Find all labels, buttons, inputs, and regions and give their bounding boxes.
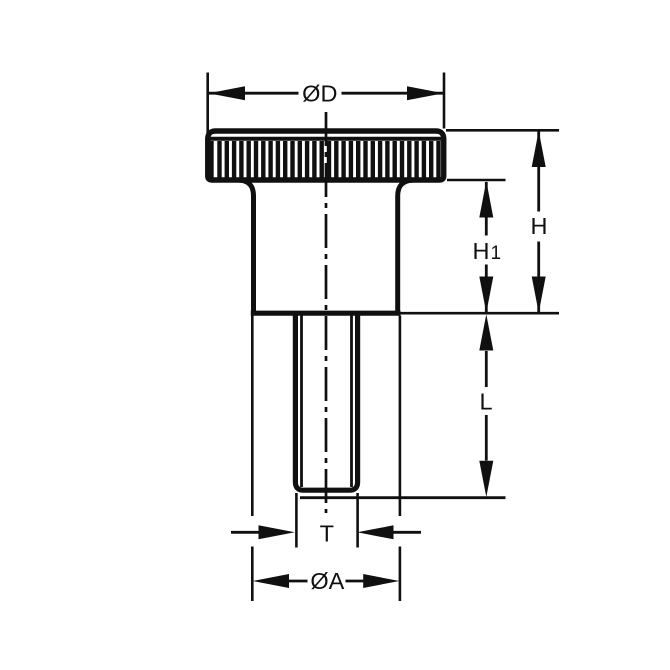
svg-text:L: L bbox=[479, 389, 492, 415]
svg-text:H: H bbox=[473, 238, 490, 264]
svg-text:ØD: ØD bbox=[302, 80, 337, 106]
svg-text:ØA: ØA bbox=[310, 568, 344, 594]
svg-text:T: T bbox=[320, 521, 334, 547]
svg-text:1: 1 bbox=[491, 243, 502, 264]
svg-text:H: H bbox=[531, 213, 548, 239]
